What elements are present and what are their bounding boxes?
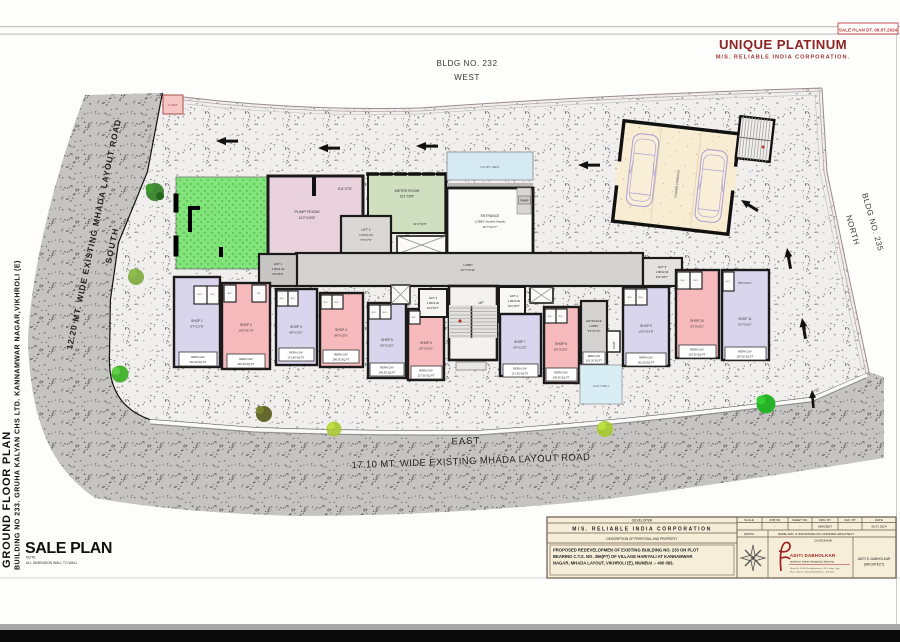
svg-text:SHOP 9: SHOP 9 xyxy=(640,324,652,328)
svg-text:ADITI DABHOLKAR: ADITI DABHOLKAR xyxy=(790,553,836,558)
svg-text:06.07.2024: 06.07.2024 xyxy=(871,525,886,529)
svg-text:M/S. RELIABLE INDIA CORPORATIO: M/S. RELIABLE INDIA CORPORATION xyxy=(572,527,712,533)
svg-text:8'5"X16'1": 8'5"X16'1" xyxy=(738,281,752,285)
svg-text:SALE PLAN: SALE PLAN xyxy=(25,540,112,557)
svg-text:9'8"X15'5": 9'8"X15'5" xyxy=(334,334,348,338)
svg-text:Mun. Capena, Vikhroli(W),Mumba: Mun. Capena, Vikhroli(W),Mumbai :- 400 0… xyxy=(790,571,835,574)
svg-text:UP: UP xyxy=(479,301,485,305)
svg-text:DRN. BY: DRN. BY xyxy=(819,518,831,522)
svg-text:M/S. RELIABLE INDIA CORPORATIO: M/S. RELIABLE INDIA CORPORATION. xyxy=(716,55,850,61)
svg-text:SHOP 6: SHOP 6 xyxy=(420,341,432,345)
svg-text:W.C.: W.C. xyxy=(559,316,564,318)
svg-text:LIFT 4: LIFT 4 xyxy=(510,294,519,298)
svg-text:PROPOSED REDEVELOPMEN OF EXIST: PROPOSED REDEVELOPMEN OF EXISTING BUILDI… xyxy=(553,548,699,553)
svg-text:6'4"X6'3": 6'4"X6'3" xyxy=(272,272,283,276)
svg-text:W.C.: W.C. xyxy=(548,316,553,318)
svg-text:145.30 SQ.FT: 145.30 SQ.FT xyxy=(553,376,570,380)
svg-text:127.30 SQ.FT: 127.30 SQ.FT xyxy=(418,374,435,378)
svg-text:RERA CAV: RERA CAV xyxy=(289,351,303,355)
svg-text:W.C.: W.C. xyxy=(694,280,699,282)
svg-text:RERA CAV: RERA CAV xyxy=(380,366,394,370)
svg-text:KIT.: KIT. xyxy=(257,293,261,295)
svg-text:LOBBY: LOBBY xyxy=(589,324,598,328)
svg-text:145.30 SQ.FT: 145.30 SQ.FT xyxy=(379,371,396,375)
svg-text:NOTE:: NOTE: xyxy=(26,556,36,560)
svg-text:16'7"X5'11": 16'7"X5'11" xyxy=(460,268,475,272)
svg-text:SHOP 4: SHOP 4 xyxy=(335,328,347,332)
svg-text:RERA CAV: RERA CAV xyxy=(419,369,433,373)
svg-text:RERA CAV: RERA CAV xyxy=(639,356,653,360)
svg-text:SHOP 11: SHOP 11 xyxy=(738,317,751,321)
svg-text:W.C.: W.C. xyxy=(198,294,203,296)
svg-text:NAGAR, MHADA LAYOUT, VIKHROLI: NAGAR, MHADA LAYOUT, VIKHROLI (E), MUMBA… xyxy=(553,561,674,566)
svg-text:NAME,ADD. & SIGNATURE OF LICEN: NAME,ADD. & SIGNATURE OF LICENSED ARCHIT… xyxy=(778,532,854,536)
svg-text:10'0"X14'8": 10'0"X14'8" xyxy=(638,330,653,334)
svg-text:6'11"X6'7": 6'11"X6'7" xyxy=(656,275,669,279)
svg-text:8'5"X13'2": 8'5"X13'2" xyxy=(513,346,527,350)
svg-text:SHOP 3: SHOP 3 xyxy=(290,325,302,329)
svg-text:CA/2023/HAB: CA/2023/HAB xyxy=(814,539,832,543)
svg-text:ALL DIMENSION WALL TO WALL: ALL DIMENSION WALL TO WALL xyxy=(26,561,78,565)
svg-text:RERA CAV: RERA CAV xyxy=(554,371,568,375)
svg-text:LIFT 5: LIFT 5 xyxy=(658,265,667,269)
svg-text:W.C.: W.C. xyxy=(335,302,340,304)
svg-text:161.00 SQ.FT: 161.00 SQ.FT xyxy=(638,361,655,365)
svg-text:171.80 SQ.FT: 171.80 SQ.FT xyxy=(288,356,305,360)
svg-text:1.80X2.00: 1.80X2.00 xyxy=(508,299,521,303)
svg-text:-: - xyxy=(775,525,776,529)
svg-text:LIFT 1: LIFT 1 xyxy=(274,262,283,266)
svg-text:WEST: WEST xyxy=(454,73,480,82)
svg-text:W.C.: W.C. xyxy=(383,312,388,314)
svg-text:6'11"X6'7": 6'11"X6'7" xyxy=(427,306,439,310)
svg-text:W.C.: W.C. xyxy=(228,293,233,295)
svg-text:8'5"X15'2": 8'5"X15'2" xyxy=(380,344,394,348)
svg-text:SCALE: SCALE xyxy=(744,518,754,522)
svg-text:187.00 SQ.FT: 187.00 SQ.FT xyxy=(737,355,754,359)
svg-text:CHK. BY: CHK. BY xyxy=(844,518,856,522)
svg-text:RAMP: RAMP xyxy=(520,199,528,203)
svg-text:W.C.: W.C. xyxy=(280,298,285,300)
svg-text:RERA CAV: RERA CAV xyxy=(334,353,348,357)
svg-text:LOBBY (double height): LOBBY (double height) xyxy=(475,220,506,224)
svg-text:W.C.: W.C. xyxy=(412,317,417,319)
svg-text:RERA CAV: RERA CAV xyxy=(588,355,601,358)
svg-text:9'2"X16'2": 9'2"X16'2" xyxy=(738,323,752,327)
svg-text:LIGHT WELL: LIGHT WELL xyxy=(593,384,610,388)
svg-text:RERA CAV: RERA CAV xyxy=(738,350,752,354)
svg-text:1.92X1.91: 1.92X1.91 xyxy=(272,267,285,271)
svg-text:LOBBY: LOBBY xyxy=(463,263,473,267)
svg-text:ENTRANCE: ENTRANCE xyxy=(481,214,500,218)
svg-text:BEARING C.T.S. NO. 356(PT) OF: BEARING C.T.S. NO. 356(PT) OF VILLAGE HA… xyxy=(553,554,692,559)
svg-text:METER ROOM: METER ROOM xyxy=(395,189,420,193)
svg-text:2.30X2.30: 2.30X2.30 xyxy=(359,233,373,237)
svg-text:Shop No. 8, BG Kher Apartment,: Shop No. 8, BG Kher Apartment, L.B.S. Ma… xyxy=(790,567,840,570)
svg-text:W.C.: W.C. xyxy=(211,294,216,296)
svg-text:10'6"X17'8": 10'6"X17'8" xyxy=(238,329,253,333)
svg-text:SHOP 8: SHOP 8 xyxy=(555,342,567,346)
svg-text:W.C.: W.C. xyxy=(291,298,296,300)
svg-text:SHOP 10: SHOP 10 xyxy=(690,319,704,323)
svg-text:-: - xyxy=(800,525,801,529)
svg-text:SHOP 2: SHOP 2 xyxy=(240,323,252,327)
svg-text:16'7"X10'7": 16'7"X10'7" xyxy=(482,225,497,229)
svg-text:RERA CAV: RERA CAV xyxy=(513,367,527,371)
svg-text:GROUND FLOOR PLAN: GROUND FLOOR PLAN xyxy=(1,431,13,568)
svg-text:W.C.: W.C. xyxy=(639,297,644,299)
svg-text:NORTH: NORTH xyxy=(744,532,755,536)
svg-text:DATE: DATE xyxy=(875,518,883,522)
svg-text:ABHIJEET: ABHIJEET xyxy=(818,525,833,529)
svg-text:8'7"X17'8": 8'7"X17'8" xyxy=(190,325,204,329)
svg-text:8'2"X15'2": 8'2"X15'2" xyxy=(554,348,568,352)
svg-text:JOB NO.: JOB NO. xyxy=(769,518,781,522)
svg-text:DESCRIPTION OF PROPOSAL AND PR: DESCRIPTION OF PROPOSAL AND PROPERTY xyxy=(606,537,678,541)
svg-text:2 UNIT: 2 UNIT xyxy=(168,103,178,107)
svg-text:PUMP ROOM: PUMP ROOM xyxy=(294,209,319,214)
svg-text:ADITI S. DABHOLKAR: ADITI S. DABHOLKAR xyxy=(858,557,891,561)
svg-text:-: - xyxy=(850,525,851,529)
svg-text:RERA CAV: RERA CAV xyxy=(690,348,704,352)
svg-text:LIFT 3: LIFT 3 xyxy=(429,296,438,300)
svg-text:SALE PLAN DT. 06.07.2024: SALE PLAN DT. 06.07.2024 xyxy=(839,28,898,33)
svg-text:(ARCHITECT): (ARCHITECT) xyxy=(864,563,884,567)
svg-text:BUILDING NO 233. GRUHA KALYAN: BUILDING NO 233. GRUHA KALYAN CHS LTD. K… xyxy=(15,260,22,570)
svg-text:7'6"X7'6": 7'6"X7'6" xyxy=(360,238,372,242)
svg-text:6'11"X6'7": 6'11"X6'7" xyxy=(508,304,520,308)
svg-text:16'1"X9'8": 16'1"X9'8" xyxy=(400,195,414,199)
svg-text:W.C.: W.C. xyxy=(324,302,329,304)
svg-text:SHOP 1: SHOP 1 xyxy=(191,319,203,323)
svg-text:SHOP 5: SHOP 5 xyxy=(381,338,393,342)
svg-text:167.30 SQ.FT: 167.30 SQ.FT xyxy=(689,353,706,357)
svg-text:RAMP: RAMP xyxy=(612,341,616,349)
svg-text:1.80X2.00: 1.80X2.00 xyxy=(656,270,669,274)
svg-text:W.C.: W.C. xyxy=(628,297,633,299)
svg-text:DEVELOPER: DEVELOPER xyxy=(632,519,653,523)
svg-text:14'2"X19'8": 14'2"X19'8" xyxy=(298,216,316,220)
svg-text:UNIQUE PLATINUM: UNIQUE PLATINUM xyxy=(719,37,847,52)
svg-text:SHOP 7: SHOP 7 xyxy=(514,340,526,344)
svg-text:LIFT 2: LIFT 2 xyxy=(361,228,370,232)
svg-text:8'11"X7'8": 8'11"X7'8" xyxy=(338,187,352,191)
svg-text:BLDG NO. 232: BLDG NO. 232 xyxy=(436,59,497,68)
svg-text:W.C.: W.C. xyxy=(372,312,377,314)
svg-text:101.00 SQ.FT: 101.00 SQ.FT xyxy=(586,360,602,363)
svg-text:W.C.: W.C. xyxy=(726,281,731,283)
svg-text:RERA CAV: RERA CAV xyxy=(191,355,205,359)
svg-text:EAST: EAST xyxy=(451,436,480,448)
svg-text:210.00 SQ.FT: 210.00 SQ.FT xyxy=(238,362,255,366)
svg-text:-: - xyxy=(749,525,750,529)
svg-text:127.30 SQ.FT: 127.30 SQ.FT xyxy=(512,372,529,376)
svg-text:architect | interior designing: architect | interior designing | liasoni… xyxy=(790,560,835,564)
svg-text:11'4"X4'5": 11'4"X4'5" xyxy=(413,222,426,226)
svg-text:W.C.: W.C. xyxy=(681,280,686,282)
svg-text:8'2"X15'2": 8'2"X15'2" xyxy=(419,347,433,351)
svg-text:9'5"X17'8": 9'5"X17'8" xyxy=(588,329,601,333)
svg-text:ENTRANCE: ENTRANCE xyxy=(586,319,602,323)
svg-text:1.80X2.00: 1.80X2.00 xyxy=(427,301,440,305)
svg-text:210.00 SQ.FT: 210.00 SQ.FT xyxy=(190,360,207,364)
svg-text:RERA CAV: RERA CAV xyxy=(239,357,253,361)
svg-text:LILY/PT. NECK: LILY/PT. NECK xyxy=(481,165,500,169)
svg-text:9'8"X15'5": 9'8"X15'5" xyxy=(289,331,303,335)
svg-text:9'2"X16'2": 9'2"X16'2" xyxy=(690,325,704,329)
svg-text:SHEET NO.: SHEET NO. xyxy=(792,518,808,522)
svg-text:186.30 SQ.FT: 186.30 SQ.FT xyxy=(333,358,350,362)
